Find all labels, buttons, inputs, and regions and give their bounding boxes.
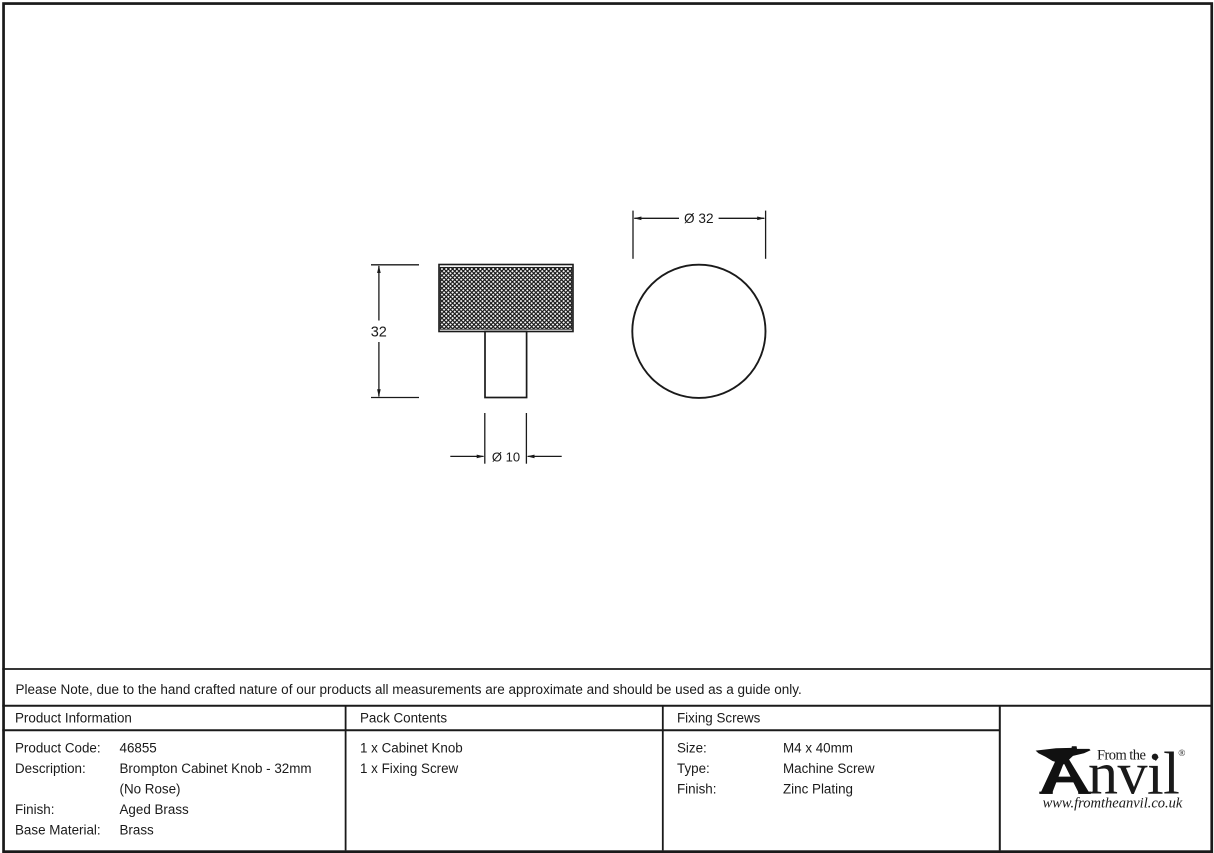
svg-text:1 x Fixing Screw: 1 x Fixing Screw xyxy=(360,761,459,776)
svg-text:1 x Cabinet Knob: 1 x Cabinet Knob xyxy=(360,741,463,756)
svg-text:M4 x 40mm: M4 x 40mm xyxy=(783,741,853,756)
svg-text:Brass: Brass xyxy=(120,823,155,838)
svg-text:Machine Screw: Machine Screw xyxy=(783,761,875,776)
svg-text:Ø 32: Ø 32 xyxy=(684,211,713,226)
svg-text:Size:: Size: xyxy=(677,741,707,756)
svg-text:Pack Contents: Pack Contents xyxy=(360,711,447,726)
svg-text:Zinc Plating: Zinc Plating xyxy=(783,782,853,797)
svg-text:32: 32 xyxy=(371,324,387,340)
svg-text:Product Information: Product Information xyxy=(15,711,132,726)
svg-text:Ø 10: Ø 10 xyxy=(492,450,520,465)
svg-text:Description:: Description: xyxy=(15,761,86,776)
svg-text:Brompton Cabinet Knob - 32mm: Brompton Cabinet Knob - 32mm xyxy=(120,761,312,776)
svg-text:Finish:: Finish: xyxy=(677,782,716,797)
svg-text:www.fromtheanvil.co.uk: www.fromtheanvil.co.uk xyxy=(1043,795,1183,811)
svg-text:46855: 46855 xyxy=(120,741,157,756)
svg-text:Type:: Type: xyxy=(677,761,710,776)
svg-text:Please Note, due to the hand c: Please Note, due to the hand crafted nat… xyxy=(16,682,802,697)
svg-text:Aged Brass: Aged Brass xyxy=(120,802,190,817)
svg-text:Finish:: Finish: xyxy=(15,802,54,817)
svg-text:Base Material:: Base Material: xyxy=(15,823,101,838)
svg-text:®: ® xyxy=(1178,748,1185,759)
svg-text:Fixing Screws: Fixing Screws xyxy=(677,711,761,726)
svg-text:(No Rose): (No Rose) xyxy=(120,782,181,797)
svg-text:Product Code:: Product Code: xyxy=(15,741,101,756)
